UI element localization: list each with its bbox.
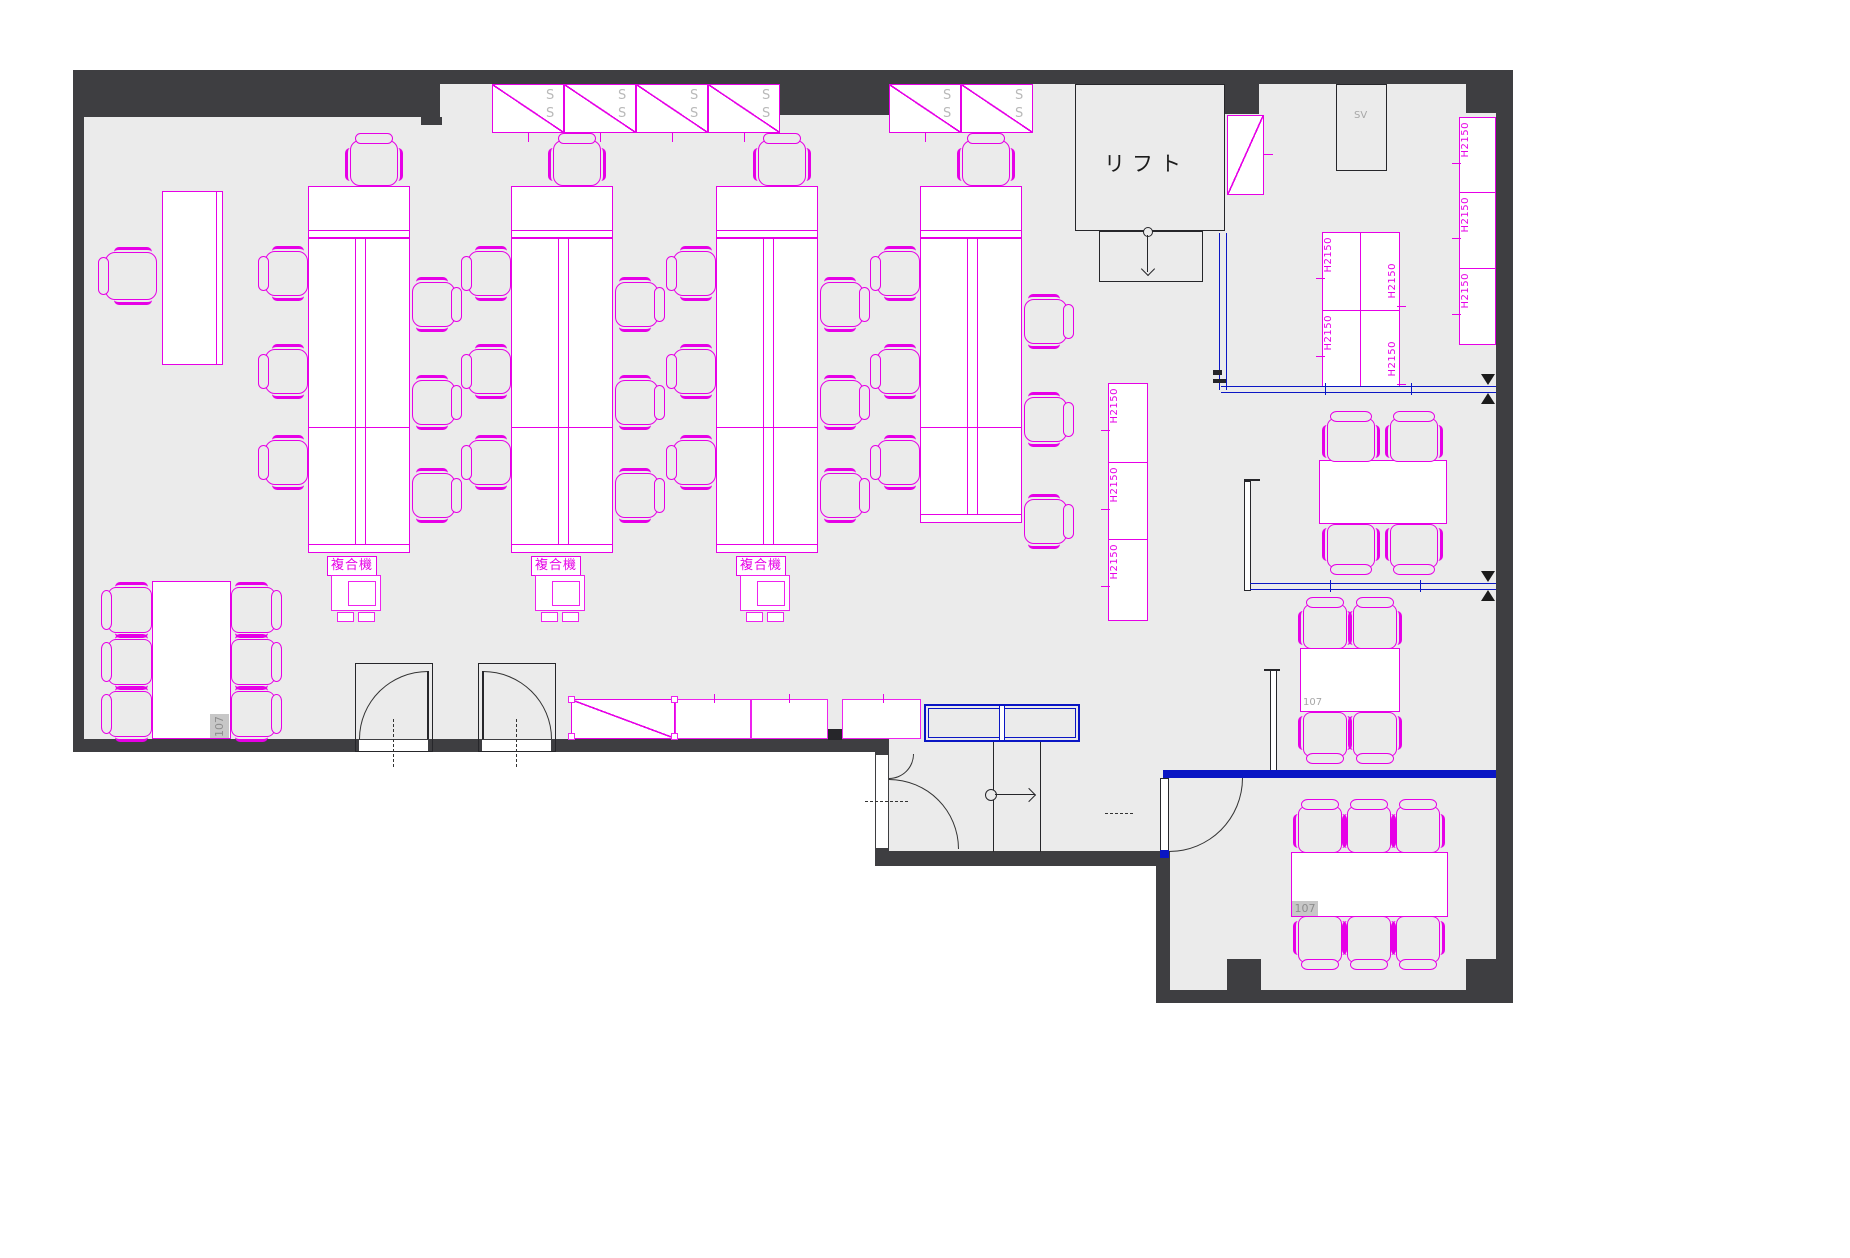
wall-lift-pillar xyxy=(1225,70,1259,114)
counter-corner xyxy=(568,733,575,740)
partition-endcap xyxy=(1213,379,1226,383)
tick xyxy=(1101,509,1110,510)
tick xyxy=(1101,430,1110,431)
office-chair xyxy=(820,380,863,425)
tick xyxy=(883,694,884,703)
tick xyxy=(1316,278,1325,279)
shelf-letter: S xyxy=(546,107,554,120)
shelf-letter: S xyxy=(762,89,770,102)
door-hinge-symbol xyxy=(1481,374,1495,385)
meeting-chair xyxy=(231,639,275,685)
office-chair xyxy=(877,440,920,485)
floor-plan: S S S S S S S S S S S S リフト SV xyxy=(0,0,1850,1258)
cabinet-divider xyxy=(1459,268,1496,269)
shelf-letter: S xyxy=(546,89,554,102)
office-chair xyxy=(877,251,920,296)
office-chair xyxy=(553,140,601,186)
meeting-chair xyxy=(1347,806,1391,853)
copier-foot xyxy=(337,612,354,622)
meeting-chair xyxy=(108,691,152,737)
meeting-chair xyxy=(1303,604,1347,649)
meeting-chair xyxy=(231,587,275,633)
meeting-chair xyxy=(108,639,152,685)
desk-island xyxy=(308,186,410,553)
tick xyxy=(1452,314,1461,315)
shelf-letter: S xyxy=(1015,107,1023,120)
meeting-chair xyxy=(1327,524,1375,568)
copier-tray xyxy=(757,581,785,606)
meeting-chair xyxy=(1303,712,1347,757)
meeting-chair xyxy=(1327,418,1375,462)
office-chair xyxy=(615,473,658,518)
partition-tick xyxy=(1325,383,1326,395)
tick xyxy=(925,133,926,142)
office-chair xyxy=(1024,397,1067,442)
room-number-badge: 107 xyxy=(210,714,229,738)
tick xyxy=(1452,238,1461,239)
counter-corner xyxy=(568,696,575,703)
tick xyxy=(789,694,790,703)
office-chair xyxy=(265,349,308,394)
shelf-letter: S xyxy=(690,107,698,120)
counter-cell xyxy=(842,699,921,739)
copier-tray xyxy=(552,581,580,606)
shelf-letter: S xyxy=(943,107,951,120)
manager-desk xyxy=(162,191,223,365)
lift-room-label: リフト xyxy=(1104,148,1188,178)
office-chair xyxy=(673,349,716,394)
wall-left xyxy=(73,70,84,752)
wall-room-bottom-pillar xyxy=(1227,959,1261,990)
lift-shaft-indicator xyxy=(1099,231,1203,282)
copier-label: 複合機 xyxy=(327,556,377,576)
meeting-table xyxy=(1319,460,1447,524)
counter-corner xyxy=(671,696,678,703)
tick xyxy=(1264,154,1273,155)
room-door-leaf xyxy=(1160,778,1169,852)
meeting-chair xyxy=(1396,806,1440,853)
shelf-letter: S xyxy=(762,107,770,120)
glass-partition-vertical xyxy=(1219,233,1227,390)
meeting-chair xyxy=(1298,806,1342,853)
tick xyxy=(600,133,601,142)
meeting-chair xyxy=(1353,712,1397,757)
office-chair xyxy=(350,140,398,186)
copier-foot xyxy=(358,612,375,622)
partition-tick xyxy=(1330,580,1331,592)
room-number: 107 xyxy=(1295,903,1316,914)
stair-wall xyxy=(1040,742,1041,852)
office-chair xyxy=(468,349,511,394)
stud-partition xyxy=(1270,670,1277,771)
office-chair xyxy=(265,440,308,485)
tick xyxy=(528,133,529,142)
cabinet-divider xyxy=(1322,310,1400,311)
tick xyxy=(1397,306,1406,307)
meeting-chair xyxy=(1298,916,1342,963)
cabinet-height-label: H2150 xyxy=(1388,263,1398,298)
shelf-letter: S xyxy=(1015,89,1023,102)
office-chair xyxy=(468,251,511,296)
door-hinge-symbol xyxy=(1481,590,1495,601)
copier-label: 複合機 xyxy=(531,556,581,576)
cabinet-height-label: H2150 xyxy=(1324,237,1334,272)
partition-endcap xyxy=(1213,370,1222,375)
copier-foot xyxy=(746,612,763,622)
cabinet-height-label: H2150 xyxy=(1461,273,1471,308)
room-number: 107 xyxy=(1303,698,1322,708)
wall-top-mid-pillar xyxy=(779,70,889,115)
stud-partition-cap xyxy=(1264,669,1280,671)
office-chair xyxy=(412,282,455,327)
tick xyxy=(1101,586,1110,587)
blue-cabinet-divider xyxy=(999,706,1005,740)
door-leaf xyxy=(482,671,484,739)
office-chair xyxy=(412,380,455,425)
counter-cell xyxy=(751,699,828,739)
office-chair xyxy=(1024,299,1067,344)
blue-cabinet-row xyxy=(924,704,1080,742)
door-centerline xyxy=(393,719,394,767)
counter-cell xyxy=(675,699,751,739)
office-chair xyxy=(877,349,920,394)
cabinet-height-label: H2150 xyxy=(1110,544,1120,579)
office-chair xyxy=(1024,499,1067,544)
meeting-chair xyxy=(108,587,152,633)
cabinet-height-label: H2150 xyxy=(1324,315,1334,350)
wall-top-left-thick xyxy=(73,70,440,117)
shelf-letter: S xyxy=(618,107,626,120)
copier-tray xyxy=(348,581,376,606)
wall-room-bottom xyxy=(1156,990,1513,1003)
wall-top-notch xyxy=(421,117,442,125)
desk-island xyxy=(920,186,1022,523)
door-hinge-symbol xyxy=(1481,571,1495,582)
room-door-centerline xyxy=(1105,813,1133,814)
office-chair xyxy=(820,473,863,518)
tick xyxy=(1397,384,1406,385)
entry-point xyxy=(985,789,997,801)
tick xyxy=(744,133,745,142)
lift-door-pivot xyxy=(1143,227,1153,237)
counter-notch xyxy=(828,729,842,740)
meeting-chair xyxy=(1353,604,1397,649)
copier-foot xyxy=(562,612,579,622)
tick xyxy=(1316,356,1325,357)
desk-island xyxy=(716,186,818,553)
server-rack xyxy=(1336,84,1387,171)
office-chair xyxy=(758,140,806,186)
shelf-letter: S xyxy=(618,89,626,102)
shelf-letter: S xyxy=(943,89,951,102)
meeting-chair xyxy=(1347,916,1391,963)
office-chair xyxy=(962,140,1010,186)
meeting-chair xyxy=(231,691,275,737)
glass-wall xyxy=(1163,770,1496,778)
office-chair xyxy=(468,440,511,485)
room-door-cap xyxy=(1160,850,1169,858)
office-chair xyxy=(615,380,658,425)
meeting-chair xyxy=(1396,916,1440,963)
copier-foot xyxy=(541,612,558,622)
shelf-letter: S xyxy=(690,89,698,102)
partition-tick xyxy=(1411,383,1412,395)
cabinet-divider xyxy=(1108,462,1148,463)
tick xyxy=(672,133,673,142)
door-centerline xyxy=(516,719,517,767)
cabinet-divider xyxy=(1459,192,1496,193)
cabinet-height-label: H2150 xyxy=(1461,122,1471,157)
copier-foot xyxy=(767,612,784,622)
glass-partition-horizontal xyxy=(1250,583,1496,590)
cabinet-height-label: H2150 xyxy=(1388,341,1398,376)
office-chair xyxy=(412,473,455,518)
glass-partition-horizontal xyxy=(1221,386,1496,393)
cabinet-height-label: H2150 xyxy=(1110,467,1120,502)
cabinet-height-label: H2150 xyxy=(1461,197,1471,232)
counter-corner xyxy=(671,733,678,740)
wall-room-left xyxy=(1156,851,1170,1003)
office-chair xyxy=(673,251,716,296)
corridor-door-centerline xyxy=(865,801,908,802)
office-chair xyxy=(673,440,716,485)
cabinet-height-label: H2150 xyxy=(1110,388,1120,423)
door-leaf xyxy=(427,671,429,739)
tick xyxy=(1452,163,1461,164)
partition-tick xyxy=(1420,580,1421,592)
cabinet-divider xyxy=(1108,539,1148,540)
stud-partition-cap xyxy=(1244,479,1260,481)
server-label: SV xyxy=(1354,111,1367,121)
wall-corridor-bottom xyxy=(875,851,1170,866)
office-chair xyxy=(265,251,308,296)
door-hinge-symbol xyxy=(1481,393,1495,404)
manager-desk-edge xyxy=(216,192,217,364)
room-number: 107 xyxy=(214,716,225,737)
copier-label: 複合機 xyxy=(736,556,786,576)
wall-room-bottom-corner xyxy=(1466,959,1513,990)
meeting-chair xyxy=(1390,524,1438,568)
wall-right xyxy=(1496,70,1513,1003)
office-chair xyxy=(615,282,658,327)
stud-partition xyxy=(1244,481,1251,591)
office-chair xyxy=(105,252,157,300)
cabinet-diagonal xyxy=(1227,115,1264,195)
office-chair xyxy=(820,282,863,327)
counter-diagonal xyxy=(571,699,675,739)
meeting-chair xyxy=(1390,418,1438,462)
desk-island xyxy=(511,186,613,553)
room-number-badge: 107 xyxy=(1292,901,1318,916)
tick xyxy=(714,694,715,703)
